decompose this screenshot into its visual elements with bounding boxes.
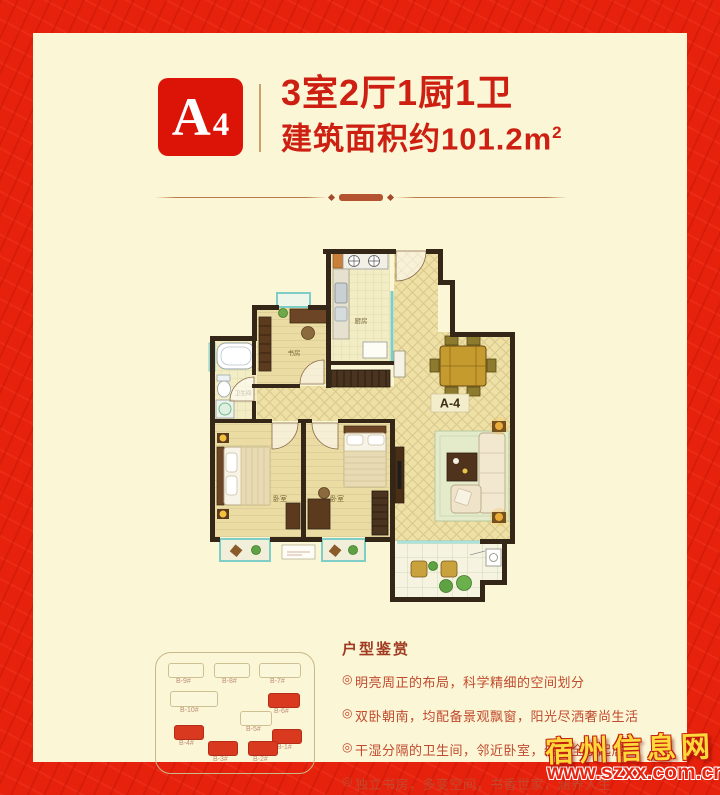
floorplan-drawing: 厨房 卫生间 书房 A-4 — [198, 243, 528, 633]
hall-cabinet — [394, 351, 405, 377]
watermark-site-name: 宿州信息网 — [545, 732, 720, 768]
bedroom1-bay-window — [220, 539, 270, 561]
lamp — [495, 513, 503, 521]
fridge — [363, 342, 387, 358]
feature-text: 明亮周正的布局，科学精细的空间划分 — [355, 672, 585, 691]
unit-badge-number: 4 — [213, 109, 230, 142]
ac-unit — [486, 549, 501, 566]
dining-chair — [445, 336, 458, 345]
building-b3 — [208, 741, 238, 756]
building-b8-label: B-8# — [222, 678, 237, 685]
area-text: 建筑面积约101.2m — [281, 121, 552, 156]
kitchen-sink — [335, 283, 347, 303]
bedroom1-label: 卧室 — [273, 494, 287, 503]
bed2-pillow — [368, 435, 384, 445]
bullet-icon: ◎ — [342, 740, 353, 754]
balcony-chair — [411, 561, 427, 577]
feature-text: 双卧朝南，均配备景观飘窗，阳光尽洒奢尚生活 — [355, 706, 639, 725]
header-titles: 3室2厅1厨1卫 建筑面积约101.2m2 — [281, 72, 563, 157]
flyer-frame: A4 3室2厅1厨1卫 建筑面积约101.2m2 — [0, 0, 720, 795]
study-label: 书房 — [288, 348, 301, 357]
divider-dot-right — [387, 193, 394, 200]
tv — [398, 461, 402, 489]
header-separator — [259, 84, 261, 152]
washer-drum — [219, 403, 231, 415]
coffee-table — [447, 453, 477, 481]
kitchen-cabinet — [333, 253, 343, 268]
bed1-headboard — [217, 447, 224, 505]
building-b8 — [214, 663, 250, 678]
building-b3-label: B-3# — [213, 756, 228, 763]
building-b5 — [240, 711, 272, 726]
bed2-pillow — [347, 435, 363, 445]
site-plan-map: B-9# B-8# B-7# B-10# B-6# B-5# B-4# B-1#… — [155, 652, 315, 774]
watermark: 宿州信息网 www.szxx.com.cn — [545, 735, 720, 785]
area-title: 建筑面积约101.2m2 — [281, 114, 563, 157]
kitchen-label: 厨房 — [355, 316, 368, 325]
dining-chair — [467, 336, 480, 345]
building-b6 — [268, 693, 300, 708]
dining-chair — [487, 359, 496, 372]
divider-ornament — [339, 194, 383, 201]
features-title: 户型鉴赏 — [342, 638, 690, 659]
bedroom2-desk — [308, 499, 330, 529]
unit-label: A-4 — [440, 397, 460, 411]
balcony-bush — [457, 576, 472, 591]
building-b10-label: B-10# — [180, 707, 199, 714]
balcony-plant — [429, 562, 438, 571]
study-bay-window — [277, 293, 310, 307]
toilet-tank — [217, 375, 230, 381]
ornamental-divider — [155, 190, 567, 204]
unit-badge: A4 — [158, 78, 243, 156]
dresser — [286, 503, 300, 529]
building-b4-label: B-4# — [179, 740, 194, 747]
unit-badge-letter: A — [172, 90, 211, 144]
bullet-icon: ◎ — [342, 774, 353, 788]
bay-plant — [252, 546, 261, 555]
building-b2 — [248, 741, 278, 756]
balcony-bush — [440, 580, 453, 593]
divider-line-left — [155, 197, 327, 198]
bedroom2-bay-window — [322, 539, 365, 561]
bed2-headboard — [344, 426, 386, 433]
building-b7-label: B-7# — [270, 678, 285, 685]
feature-item: ◎ 明亮周正的布局，科学精细的空间划分 — [342, 672, 690, 691]
balcony-chair — [441, 561, 457, 577]
area-superscript: 2 — [552, 123, 562, 142]
bay-plant — [349, 546, 358, 555]
study-plant — [279, 309, 288, 318]
bed1-blanket — [241, 447, 270, 505]
divider-dot-left — [328, 193, 335, 200]
bullet-icon: ◎ — [342, 672, 353, 686]
wardrobe — [372, 491, 388, 535]
desk-chair — [302, 327, 315, 340]
nightstand-lamp — [220, 511, 227, 518]
building-b6-label: B-6# — [274, 708, 289, 715]
building-b9 — [168, 663, 204, 678]
building-b10 — [170, 691, 218, 707]
bed1-pillow — [226, 476, 237, 495]
dining-chair — [430, 359, 439, 372]
building-b4 — [174, 725, 204, 740]
building-b1-label: B-1# — [277, 744, 292, 751]
bedroom2-chair — [319, 488, 330, 499]
building-b9-label: B-9# — [176, 678, 191, 685]
building-b7 — [259, 663, 301, 678]
storage-closet — [331, 370, 390, 387]
building-b5-label: B-5# — [246, 726, 261, 733]
divider-line-right — [395, 197, 567, 198]
nightstand-lamp — [220, 435, 227, 442]
feature-item: ◎ 双卧朝南，均配备景观飘窗，阳光尽洒奢尚生活 — [342, 706, 690, 725]
bed1-pillow — [226, 453, 237, 472]
building-b2-label: B-2# — [253, 756, 268, 763]
table-decor — [463, 469, 468, 474]
bullet-icon: ◎ — [342, 706, 353, 720]
hallway-floor — [257, 386, 394, 421]
bedroom2-label: 卧室 — [330, 494, 344, 503]
kitchen-counter — [333, 269, 349, 339]
lamp — [495, 422, 503, 430]
layout-title: 3室2厅1厨1卫 — [281, 72, 563, 114]
toilet — [218, 381, 231, 397]
table-decor — [453, 458, 459, 464]
study-desk — [290, 309, 330, 323]
kitchen-sink-2 — [335, 307, 347, 321]
